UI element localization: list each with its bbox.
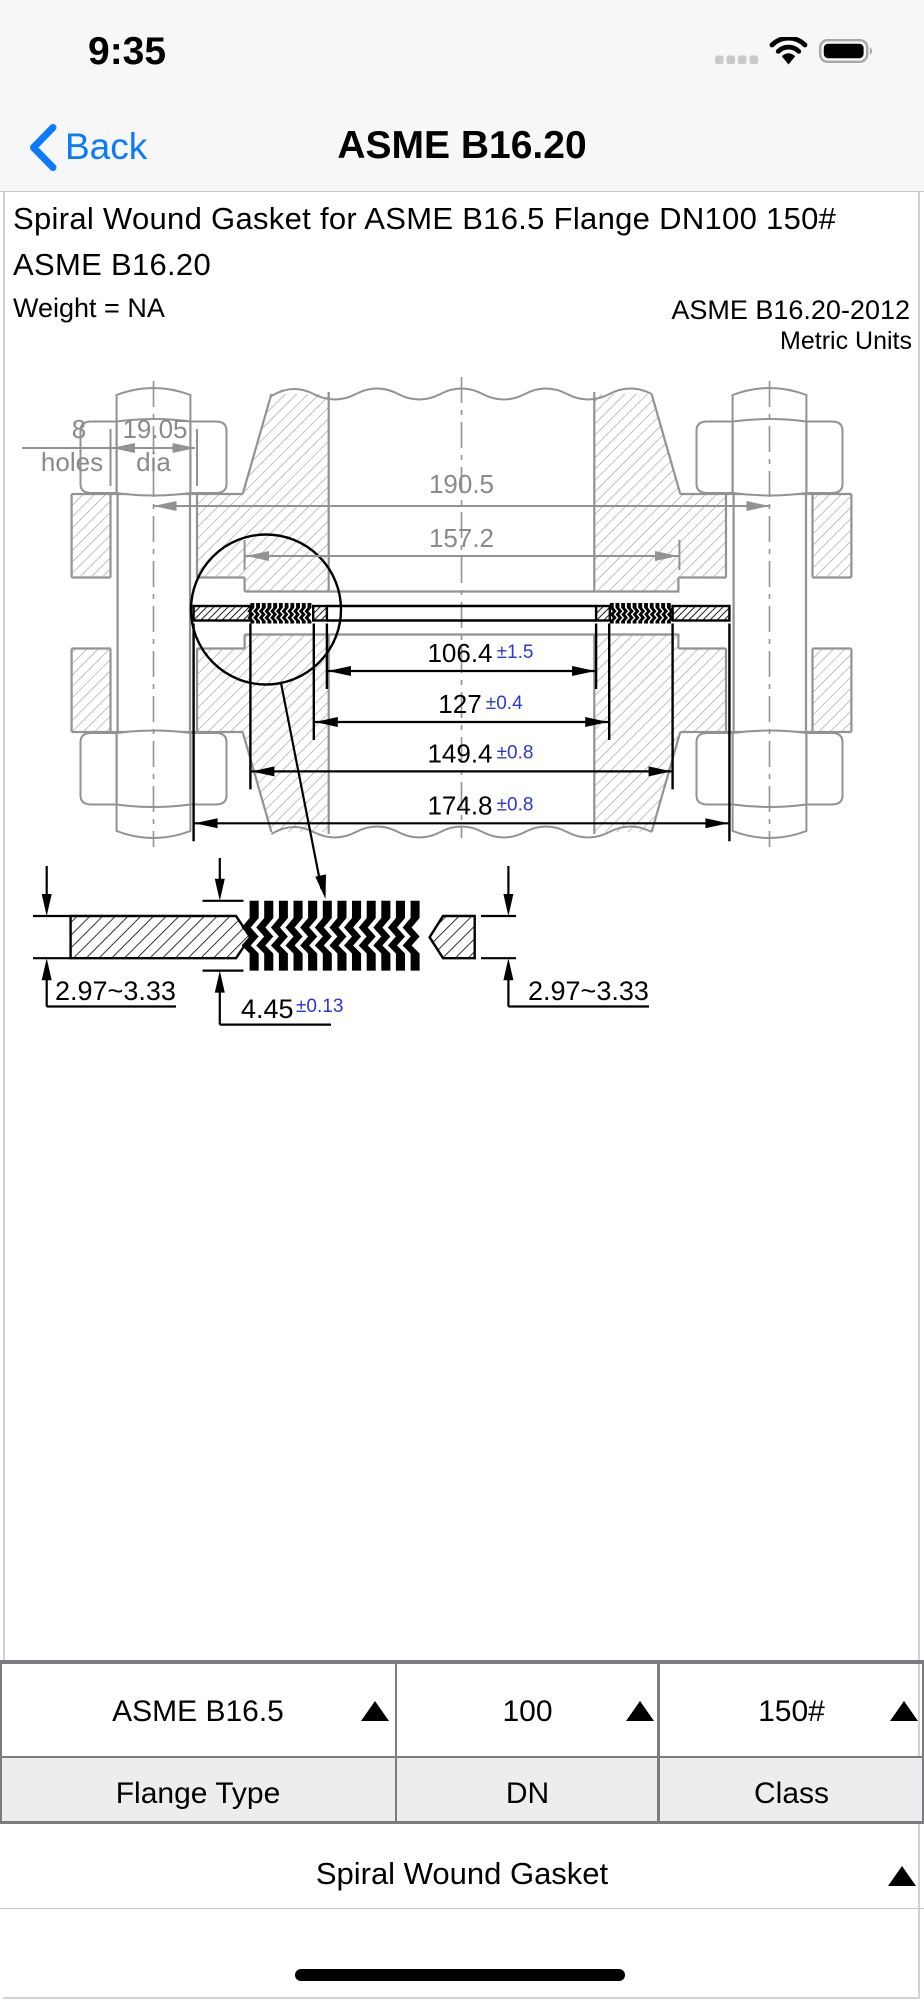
svg-text:±0.8: ±0.8 <box>497 742 534 763</box>
svg-text:106.4: 106.4 <box>427 638 492 668</box>
svg-text:holes: holes <box>41 447 103 477</box>
svg-text:dia: dia <box>136 447 171 477</box>
svg-text:±0.8: ±0.8 <box>497 794 534 815</box>
svg-text:2.97~3.33: 2.97~3.33 <box>55 976 176 1006</box>
svg-text:157.2: 157.2 <box>429 523 494 553</box>
svg-text:149.4: 149.4 <box>427 738 492 768</box>
svg-text:±0.13: ±0.13 <box>296 996 343 1017</box>
svg-text:127: 127 <box>438 689 481 719</box>
svg-text:8: 8 <box>72 414 86 444</box>
svg-text:±0.4: ±0.4 <box>486 693 523 714</box>
svg-text:19.05: 19.05 <box>122 414 187 444</box>
svg-text:2.97~3.33: 2.97~3.33 <box>528 976 649 1006</box>
svg-text:±1.5: ±1.5 <box>497 642 534 663</box>
svg-text:4.45: 4.45 <box>241 994 294 1024</box>
svg-text:190.5: 190.5 <box>429 469 494 499</box>
svg-text:174.8: 174.8 <box>427 790 492 820</box>
